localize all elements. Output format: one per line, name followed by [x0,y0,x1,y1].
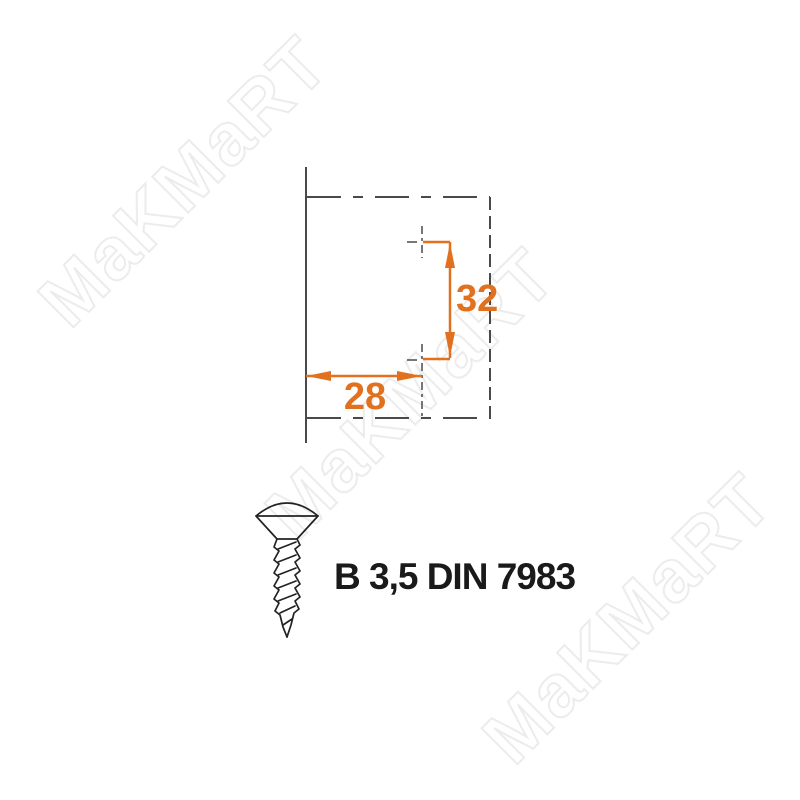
screw-head-cone [256,516,318,539]
screw-head [256,503,318,516]
vertical-dimension-32: 32 [423,242,498,359]
drill-dimension-diagram: 32 28 [0,0,800,800]
dimension-value-28: 28 [344,376,386,418]
screw-thread-right [287,539,300,637]
product-drawing-canvas: MaKMaRT MaKMaRT MaKMaRT 32 [0,0,800,800]
arrow-up-icon [445,243,455,268]
hole-center-mark-bottom [407,344,422,418]
screw-spec-label: B 3,5 DIN 7983 [334,556,575,598]
hole-center-mark-top [407,226,422,258]
arrow-down-icon [445,332,455,357]
dimension-value-32: 32 [456,278,498,320]
screw-thread-left [274,539,287,637]
arrow-left-icon [306,371,331,381]
arrow-right-icon [397,371,422,381]
horizontal-dimension-28: 28 [306,371,422,418]
screw-icon [252,499,322,641]
